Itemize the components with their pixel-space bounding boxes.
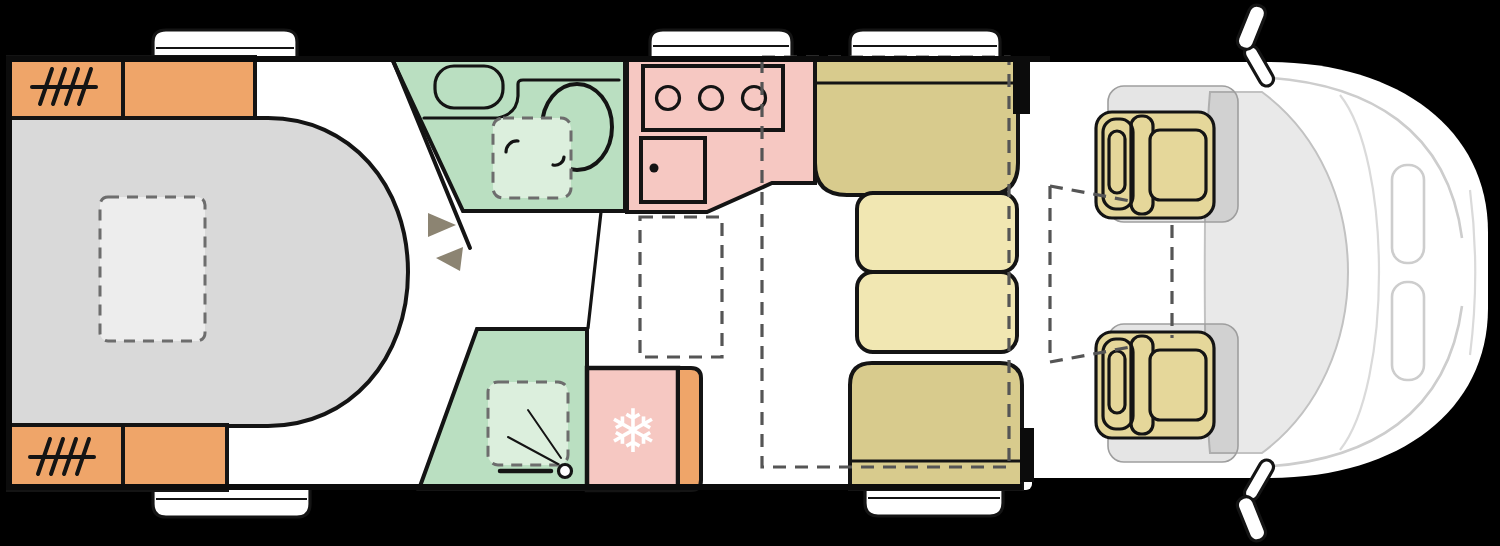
floorplan-stage: ❄ xyxy=(0,0,1500,546)
entry-door-step xyxy=(865,488,1003,516)
washbasin xyxy=(435,66,503,108)
cab-seat-passenger xyxy=(1096,332,1214,438)
window-rear-top xyxy=(153,30,297,58)
fridge-unit: ❄ xyxy=(587,368,701,490)
wall-stub-bottom xyxy=(1020,428,1034,482)
shower-tray xyxy=(488,382,568,465)
sink-drain xyxy=(650,164,659,173)
rear-bed-area xyxy=(10,118,408,426)
window-dinette-top xyxy=(850,30,1000,58)
snowflake-icon: ❄ xyxy=(608,396,658,466)
cab-seat-driver xyxy=(1096,112,1214,218)
burner-icon xyxy=(657,87,680,110)
burner-icon xyxy=(700,87,723,110)
island-bed xyxy=(10,118,408,426)
dinette-table-leaf xyxy=(857,193,1017,272)
washroom-tray xyxy=(493,118,571,198)
cabinet-bottom xyxy=(123,425,227,490)
window-rear-bottom xyxy=(153,488,310,517)
tall-cabinet xyxy=(678,368,701,490)
wall-stub-top xyxy=(1013,56,1030,114)
dinette-bench-bottom xyxy=(850,363,1022,489)
dinette-bench-top xyxy=(815,59,1018,195)
door-hinge xyxy=(559,465,572,478)
bed-skylight xyxy=(100,197,205,341)
window-kitchen-top xyxy=(650,30,792,58)
cabinet-top xyxy=(123,57,255,118)
dinette-table-leaf xyxy=(857,272,1017,352)
motorhome-floorplan: ❄ xyxy=(0,0,1500,546)
